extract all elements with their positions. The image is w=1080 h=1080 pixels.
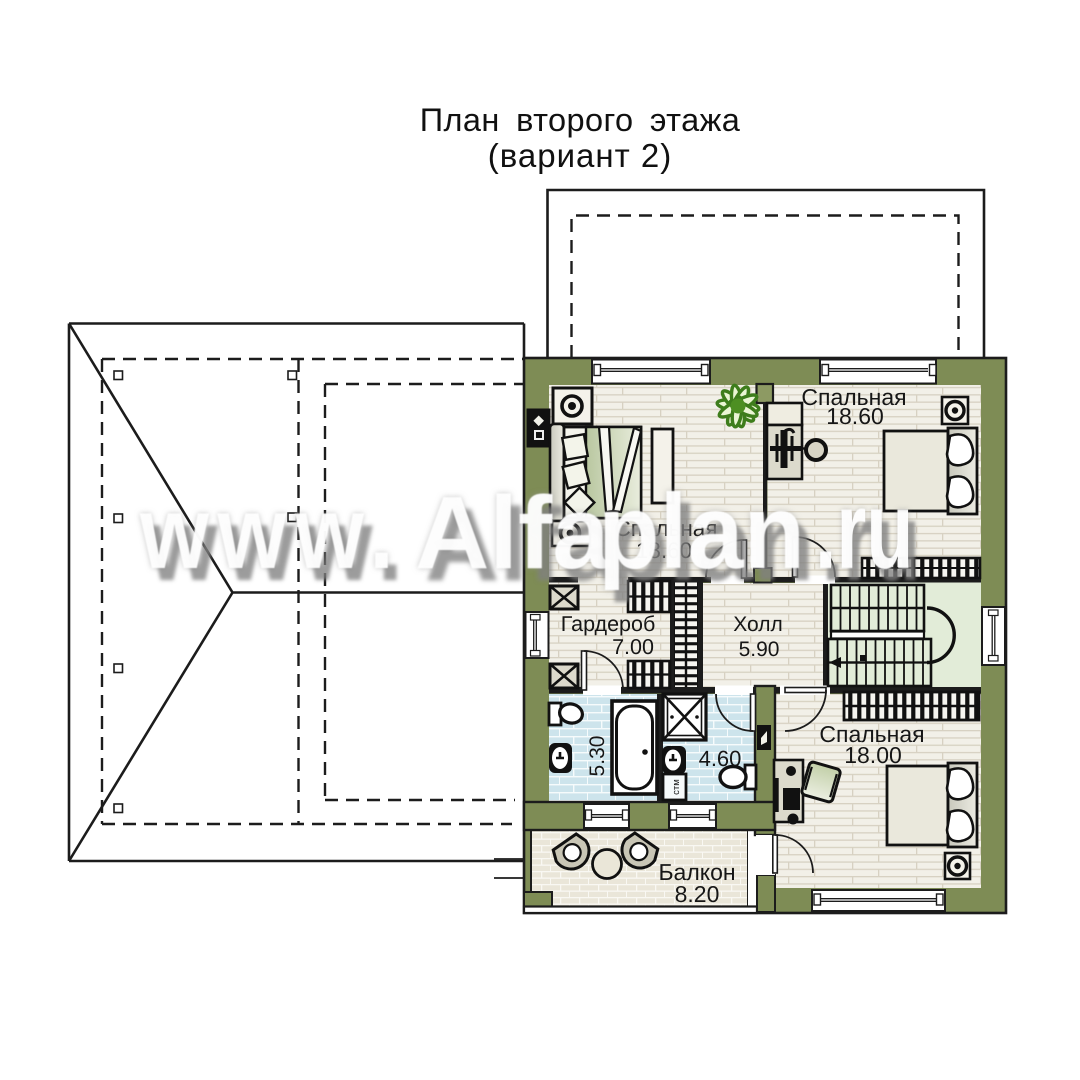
- svg-text:4.60: 4.60: [699, 746, 742, 771]
- svg-text:18.60: 18.60: [826, 403, 884, 429]
- svg-text:5.90: 5.90: [739, 638, 780, 661]
- svg-text:18.60: 18.60: [636, 538, 692, 563]
- svg-text:8.20: 8.20: [675, 881, 720, 907]
- svg-text:7.00: 7.00: [612, 635, 654, 659]
- svg-text:5.30: 5.30: [586, 736, 609, 777]
- svg-text:Холл: Холл: [733, 613, 783, 636]
- svg-text:стм: стм: [671, 779, 682, 795]
- svg-text:18.00: 18.00: [844, 742, 902, 768]
- svg-text:Гардероб: Гардероб: [561, 612, 656, 636]
